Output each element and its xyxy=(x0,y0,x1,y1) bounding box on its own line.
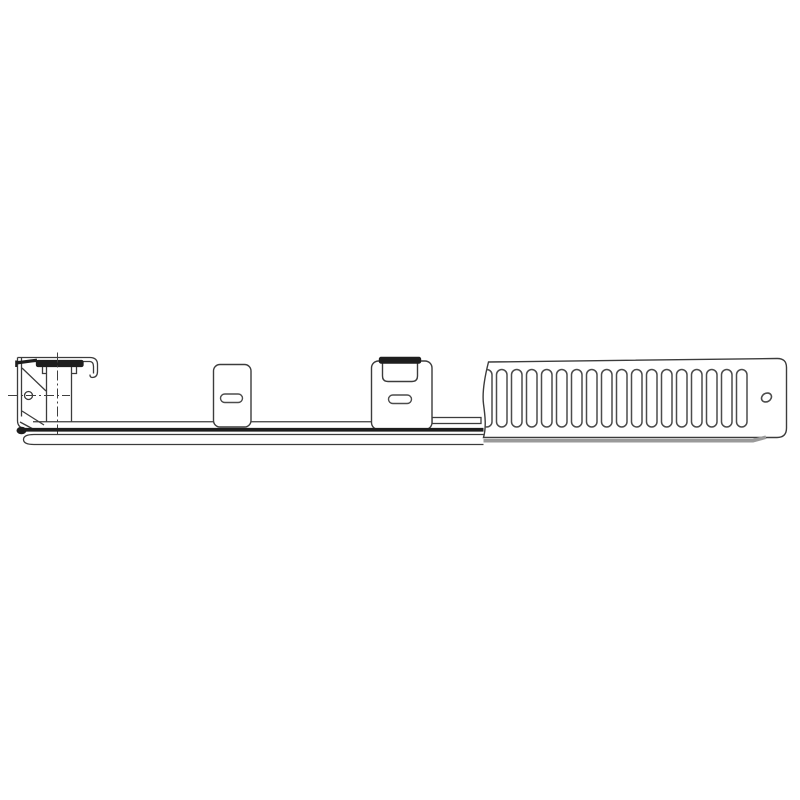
wall-bracket xyxy=(8,353,98,436)
technical-drawing-canvas xyxy=(0,0,800,800)
assembly-side-view xyxy=(0,0,800,800)
vented-panel xyxy=(482,358,787,437)
bracket-gusset-diagonal-lower xyxy=(22,411,44,425)
bracket-post-cap xyxy=(37,361,84,367)
mounting-clip-large xyxy=(372,358,433,430)
rail-lower-bar xyxy=(24,435,484,445)
clip-large-top-cap xyxy=(380,358,421,364)
rail-strip xyxy=(432,418,481,424)
bracket-hook xyxy=(90,358,98,378)
mounting-clip-small xyxy=(214,365,252,428)
clip-small-body xyxy=(214,365,252,428)
bracket-post xyxy=(47,367,72,422)
rail-left-end-cap xyxy=(17,427,27,435)
bracket-flange-left-edge xyxy=(16,360,37,363)
